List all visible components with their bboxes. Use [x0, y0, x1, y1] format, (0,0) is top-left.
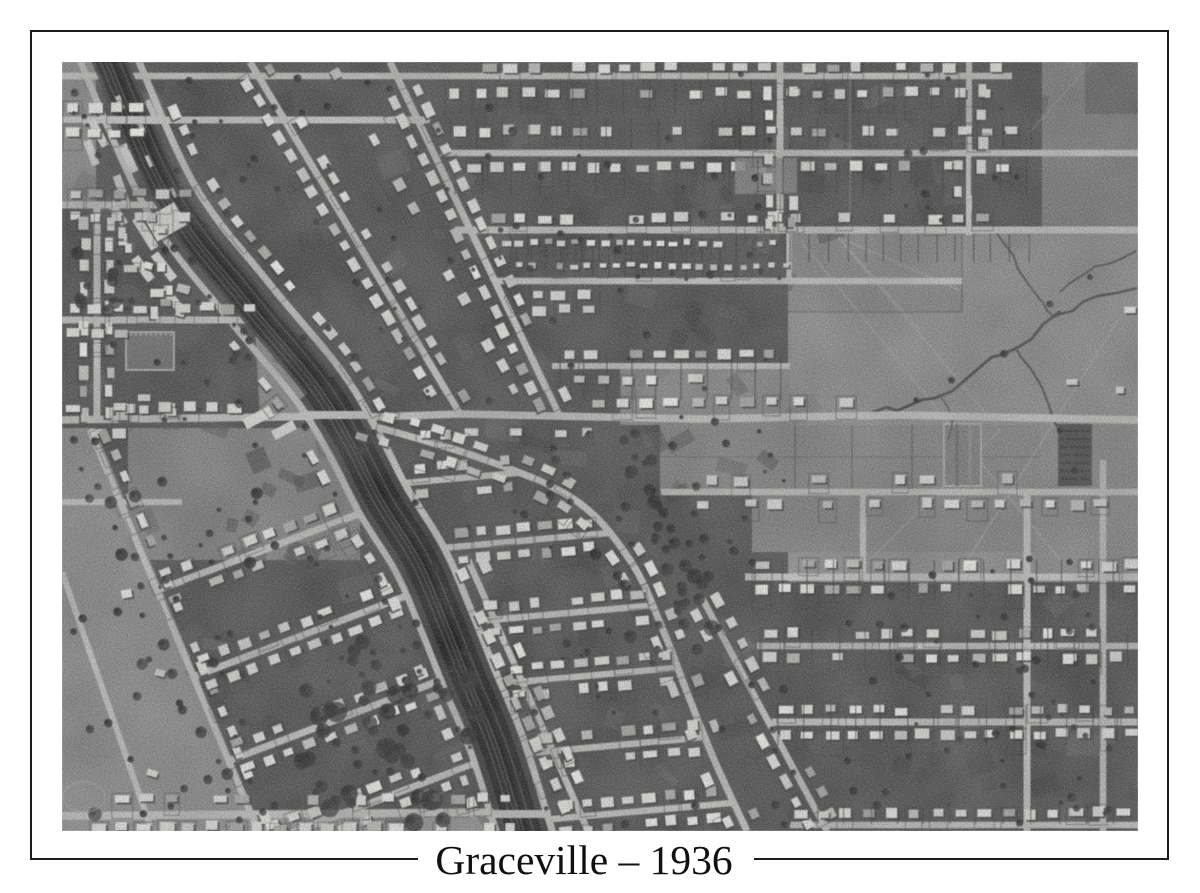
svg-text:Graceville – 1936: Graceville – 1936	[435, 837, 732, 883]
